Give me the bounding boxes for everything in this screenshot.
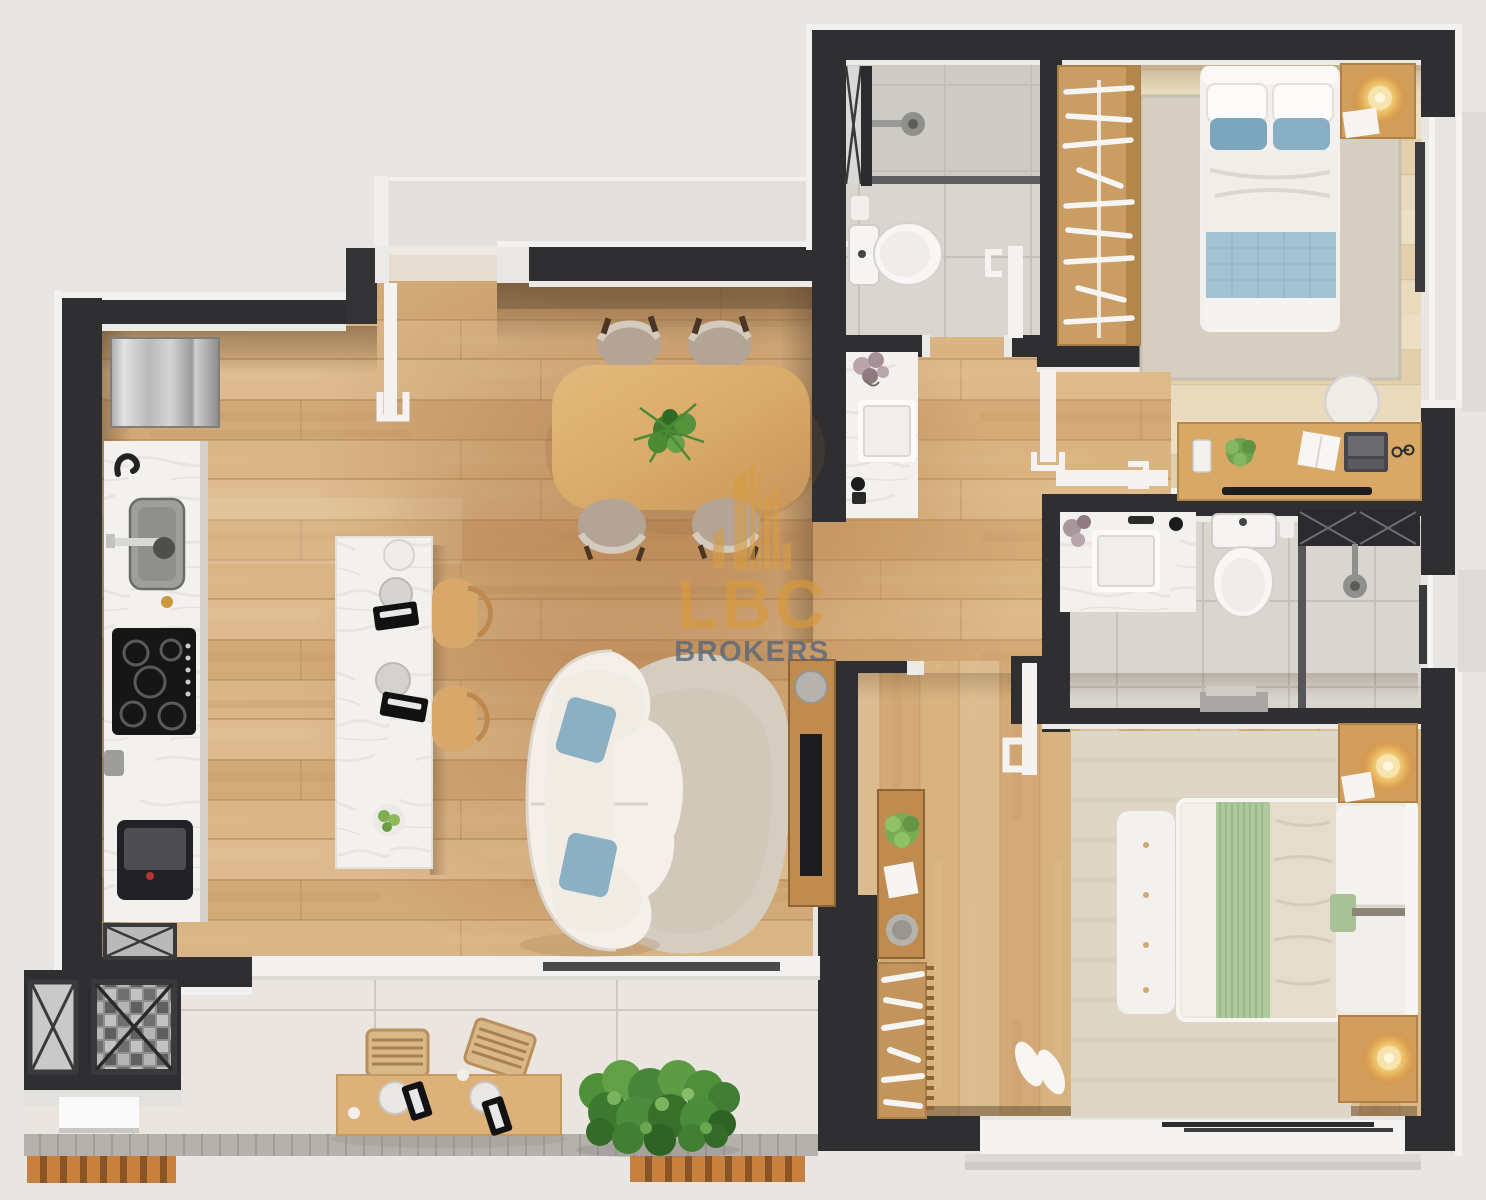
svg-text:LBC: LBC [677, 566, 828, 643]
svg-text:BROKERS: BROKERS [674, 636, 830, 668]
